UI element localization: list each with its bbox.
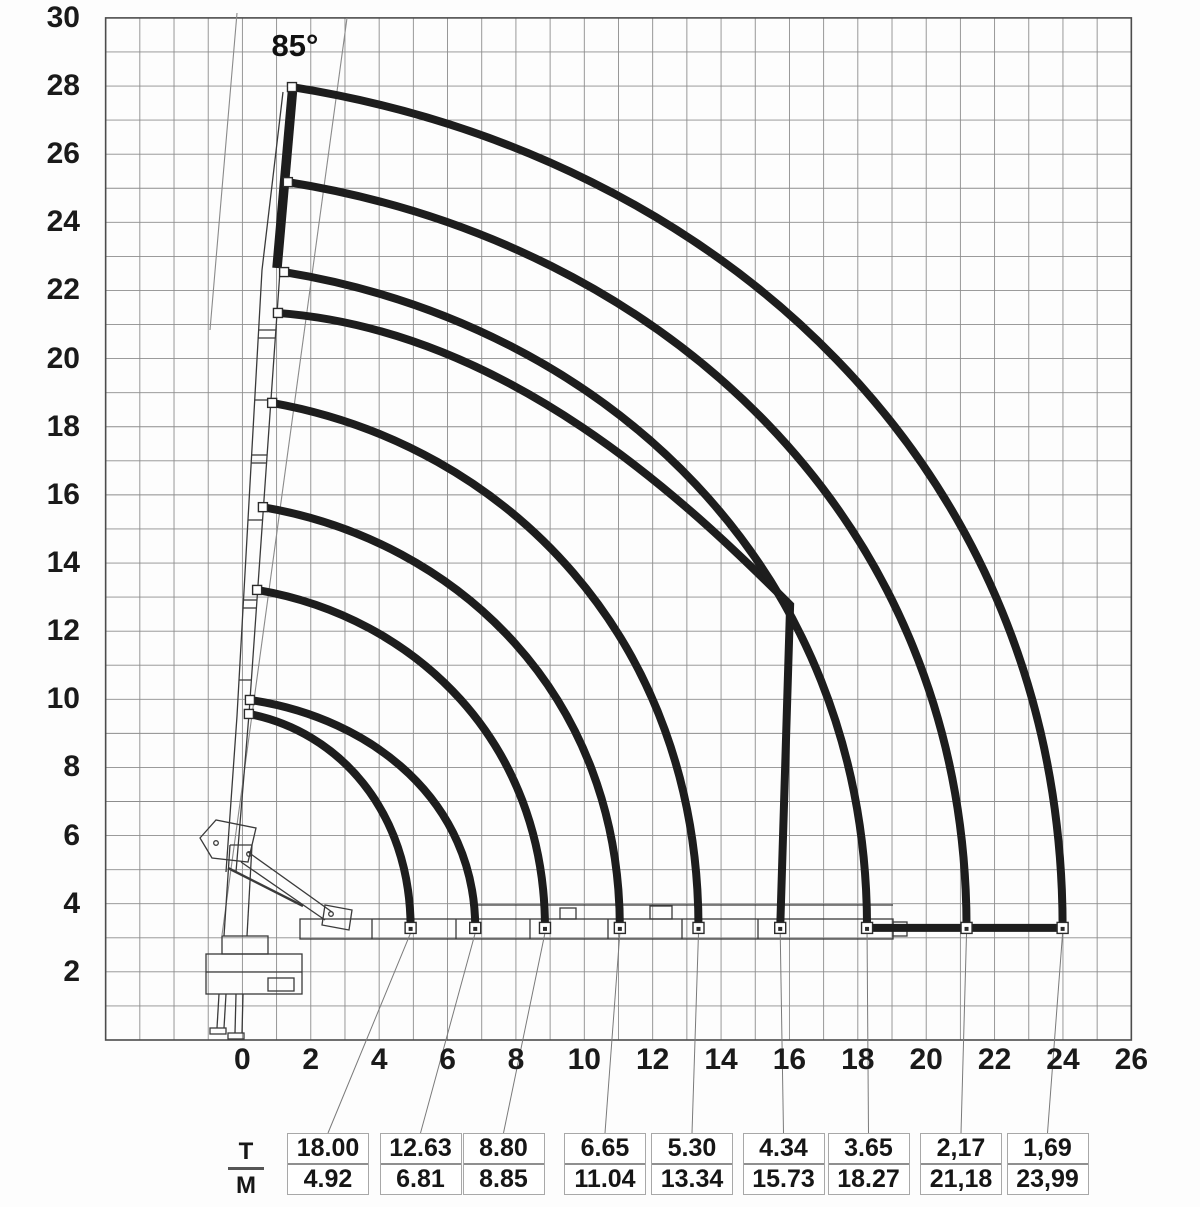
- leader-lines: [328, 933, 1063, 1133]
- y-tick-label-18: 18: [10, 411, 80, 443]
- y-tick-label-6: 6: [10, 820, 80, 852]
- x-tick-label-24: 24: [1033, 1044, 1093, 1076]
- x-tick-label-6: 6: [418, 1044, 478, 1076]
- capacity-tonnes-value: 6.65: [565, 1134, 645, 1163]
- curve-top-marker: [258, 503, 267, 512]
- y-tick-label-4: 4: [10, 888, 80, 920]
- y-tick-label-8: 8: [10, 751, 80, 783]
- leader-line: [780, 933, 783, 1133]
- boom-left-edge: [226, 92, 283, 872]
- capacity-tonnes-value: 1,69: [1008, 1134, 1088, 1163]
- extended-boom-outline: [300, 919, 893, 939]
- y-tick-label-22: 22: [10, 274, 80, 306]
- capacity-box: 6.6511.04: [564, 1133, 646, 1195]
- capacity-box: 5.3013.34: [651, 1133, 733, 1195]
- x-tick-label-12: 12: [623, 1044, 683, 1076]
- capacity-outreach-legend: T M: [224, 1139, 268, 1199]
- pivot-pin: [329, 912, 334, 917]
- boom-top-section-thick: [277, 85, 293, 268]
- pivot-pin: [214, 841, 219, 846]
- column-edge: [247, 845, 252, 936]
- x-tick-label-20: 20: [896, 1044, 956, 1076]
- y-tick-label-16: 16: [10, 479, 80, 511]
- leader-line: [504, 933, 545, 1133]
- capacity-tonnes-value: 18.00: [288, 1134, 368, 1163]
- leader-line: [605, 933, 620, 1133]
- x-tick-label-16: 16: [759, 1044, 819, 1076]
- curve-end-marker-dot: [1061, 927, 1065, 931]
- capacity-curve-6.81: [250, 700, 475, 928]
- x-tick-label-18: 18: [828, 1044, 888, 1076]
- stabilizer-leg: [235, 994, 236, 1033]
- capacity-box: 1,6923,99: [1007, 1133, 1089, 1195]
- leader-line: [961, 933, 967, 1133]
- curve-end-markers: [244, 83, 1068, 934]
- y-tick-label-20: 20: [10, 343, 80, 375]
- curve-end-marker-dot: [865, 927, 869, 931]
- y-tick-label-14: 14: [10, 547, 80, 579]
- y-tick-label-30: 30: [10, 2, 80, 34]
- stabilizer-pad: [210, 1028, 226, 1034]
- x-tick-label-26: 26: [1101, 1044, 1161, 1076]
- capacity-diagram-svg: [0, 0, 1200, 1207]
- curve-end-marker-dot: [618, 927, 622, 931]
- crane-illustration: [200, 85, 907, 1039]
- capacity-tonnes-value: 8.80: [464, 1134, 544, 1163]
- capacity-box: 2,1721,18: [920, 1133, 1002, 1195]
- capacity-box: 18.004.92: [287, 1133, 369, 1195]
- capacity-box: 8.808.85: [463, 1133, 545, 1195]
- stabilizer-leg: [217, 994, 219, 1028]
- outreach-metres-value: 11.04: [565, 1163, 645, 1193]
- y-tick-label-24: 24: [10, 206, 80, 238]
- curve-end-marker-dot: [409, 927, 413, 931]
- leader-line: [867, 933, 868, 1133]
- outreach-metres-value: 4.92: [288, 1163, 368, 1193]
- x-tick-label-10: 10: [554, 1044, 614, 1076]
- curve-top-marker: [273, 308, 282, 317]
- x-tick-label-2: 2: [281, 1044, 341, 1076]
- boom-connector: [650, 906, 672, 919]
- curve-top-marker: [245, 695, 254, 704]
- capacity-tonnes-value: 4.34: [744, 1134, 824, 1163]
- curve-top-marker: [287, 83, 296, 92]
- y-tick-label-10: 10: [10, 683, 80, 715]
- curve-top-marker: [253, 585, 262, 594]
- legend-tonnes: T: [224, 1139, 268, 1166]
- crane-base: [206, 954, 302, 994]
- outreach-metres-value: 6.81: [381, 1163, 461, 1193]
- y-tick-label-28: 28: [10, 70, 80, 102]
- boom-connector: [560, 908, 576, 919]
- boom-angle-label: 85°: [250, 28, 340, 64]
- capacity-box: 12.636.81: [380, 1133, 462, 1195]
- outreach-metres-value: 21,18: [921, 1163, 1001, 1193]
- boom-angle-reference-lines: [210, 13, 347, 935]
- capacity-tonnes-value: 3.65: [829, 1134, 909, 1163]
- curve-top-marker: [280, 268, 289, 277]
- y-tick-label-2: 2: [10, 956, 80, 988]
- curve-end-marker-dot: [965, 927, 969, 931]
- x-tick-label-4: 4: [349, 1044, 409, 1076]
- outreach-metres-value: 15.73: [744, 1163, 824, 1193]
- capacity-tonnes-value: 12.63: [381, 1134, 461, 1163]
- folded-arm: [248, 852, 332, 912]
- curve-end-marker-dot: [473, 927, 477, 931]
- folded-arm: [241, 862, 325, 920]
- base-box: [268, 978, 294, 991]
- legend-metres: M: [224, 1171, 268, 1199]
- outreach-metres-value: 18.27: [829, 1163, 909, 1193]
- leader-line: [1048, 933, 1063, 1133]
- capacity-tonnes-value: 2,17: [921, 1134, 1001, 1163]
- stabilizer-pad: [228, 1033, 244, 1039]
- outreach-metres-value: 8.85: [464, 1163, 544, 1193]
- boom-edge-faint-line: [210, 13, 237, 330]
- crane-load-chart: 30282624222018161412108642 0246810121416…: [0, 0, 1200, 1207]
- capacity-curve-8.85: [257, 590, 545, 928]
- turret: [222, 936, 268, 954]
- curve-end-marker-dot: [696, 927, 700, 931]
- curve-top-marker: [268, 398, 277, 407]
- leader-line: [692, 933, 698, 1133]
- curve-top-marker: [283, 178, 292, 187]
- hydraulic-cylinder: [228, 868, 303, 906]
- x-tick-label-8: 8: [486, 1044, 546, 1076]
- legend-divider: [228, 1167, 264, 1170]
- stabilizer-leg: [224, 994, 226, 1028]
- capacity-curve-4.92: [249, 714, 411, 928]
- curve-top-marker: [244, 709, 253, 718]
- leader-line: [328, 933, 411, 1133]
- outreach-metres-value: 23,99: [1008, 1163, 1088, 1193]
- capacity-box: 3.6518.27: [828, 1133, 910, 1195]
- y-tick-label-26: 26: [10, 138, 80, 170]
- x-tick-label-14: 14: [691, 1044, 751, 1076]
- x-tick-label-0: 0: [212, 1044, 272, 1076]
- capacity-box: 4.3415.73: [743, 1133, 825, 1195]
- capacity-tonnes-value: 5.30: [652, 1134, 732, 1163]
- y-tick-label-12: 12: [10, 615, 80, 647]
- curve-end-marker-dot: [543, 927, 547, 931]
- x-tick-label-22: 22: [965, 1044, 1025, 1076]
- outreach-metres-value: 13.34: [652, 1163, 732, 1193]
- curve-end-marker-dot: [778, 927, 782, 931]
